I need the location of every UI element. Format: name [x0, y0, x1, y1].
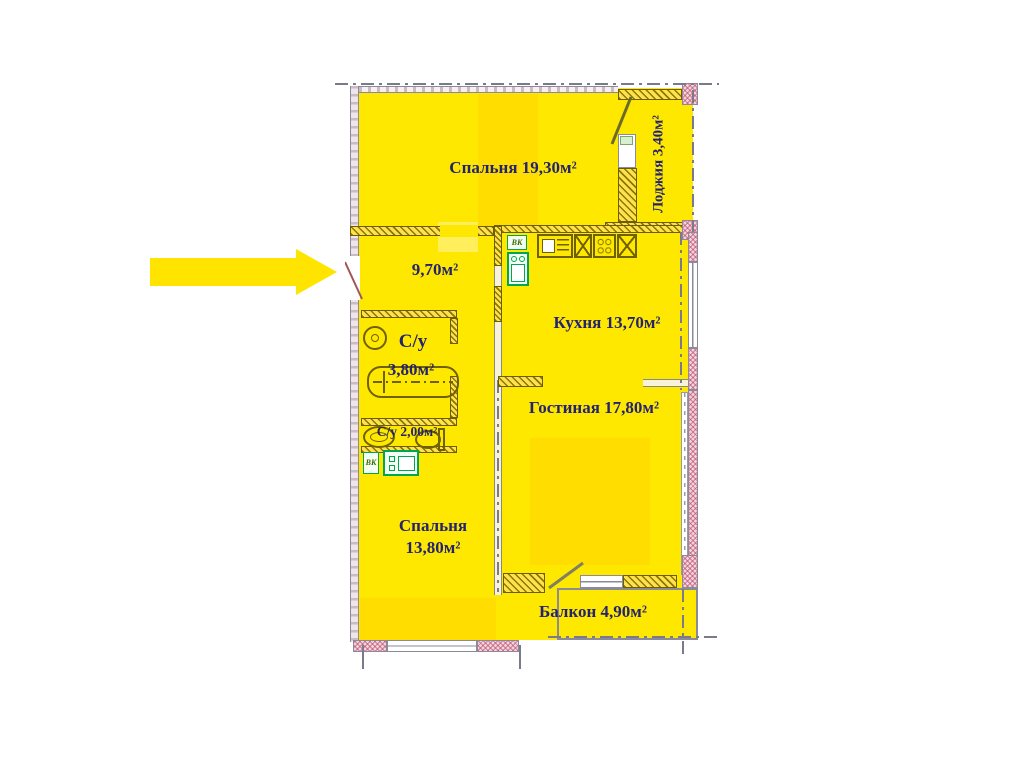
room-label-kitchen: Кухня 13,70м²: [553, 313, 660, 333]
room-label-bedroom-top: Спальня 19,30м²: [449, 158, 576, 178]
room-label-hall: 9,70м²: [412, 260, 458, 280]
room-label-bedroom-bottom-2: 13,80м²: [406, 538, 461, 558]
room-label-bath-large-2: 3,80м²: [388, 360, 434, 380]
apartment-floorplan: ВК ВК: [345, 80, 707, 680]
entrance-door-swing-icon: [345, 262, 362, 299]
room-label-loggia: Лоджия 3,40м²: [651, 115, 668, 213]
room-label-living: Гостиная 17,80м²: [529, 398, 659, 418]
room-label-bath-large-1: С/у: [399, 331, 428, 353]
loggia-door-swing-icon: [612, 97, 631, 144]
floorplan-image: ВК ВК: [0, 0, 1024, 768]
balcony-door-swing-icon: [549, 563, 583, 588]
room-label-bath-small: С/у 2,00м²: [377, 424, 438, 440]
room-label-bedroom-bottom-1: Спальня: [399, 516, 467, 536]
pointer-arrow-icon: [148, 246, 340, 298]
room-label-balcony: Балкон 4,90м²: [539, 602, 647, 622]
